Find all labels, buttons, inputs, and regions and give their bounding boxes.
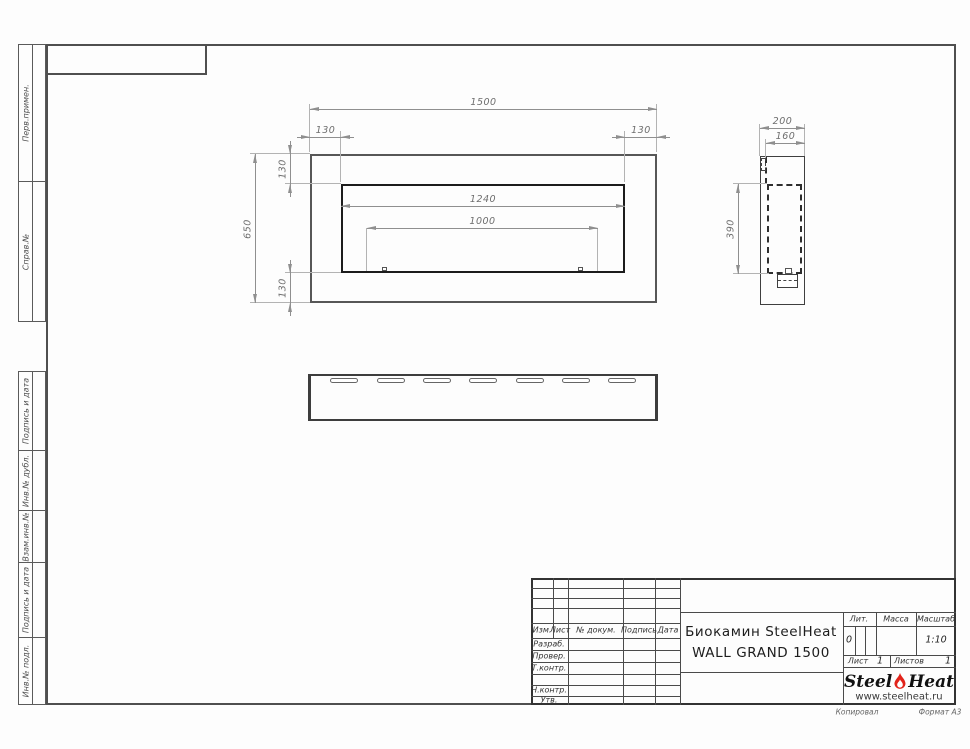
- burner-mark: [382, 267, 387, 271]
- margin-divider: [32, 182, 33, 321]
- arrow-icon: [253, 154, 257, 163]
- logo-heat-text: Heat: [908, 674, 954, 691]
- header-izm: Изм.: [533, 626, 552, 635]
- row-tkontr: Т.контр.: [532, 664, 567, 673]
- extension-line: [250, 153, 310, 154]
- dim-front-opening-width: 1240: [341, 206, 625, 207]
- vent-slot: [377, 378, 405, 383]
- arrow-icon: [589, 226, 598, 230]
- steelheat-logo: Steel Heat: [844, 673, 954, 691]
- dim-value: 1240: [470, 194, 496, 205]
- title-block-line: [865, 626, 866, 655]
- dim-front-width: 1500: [310, 109, 657, 110]
- title-block-line: [680, 612, 956, 613]
- margin-box-podpis-data-1: Подпись и дата: [18, 371, 46, 451]
- vent-slot: [516, 378, 544, 383]
- dim-side-depth: 200: [760, 128, 805, 129]
- arrow-icon: [341, 204, 350, 208]
- lit-value: 0: [846, 635, 852, 646]
- margin-box-podpis-data-2: Подпись и дата: [18, 562, 46, 638]
- dim-front-left-bottom-offset: 130: [290, 273, 291, 303]
- dim-value: 130: [316, 125, 336, 136]
- title-block-line: [531, 598, 680, 599]
- dim-side-inner-height: 390: [738, 184, 739, 274]
- dim-value: 160: [776, 131, 796, 142]
- title-block-line: [890, 655, 891, 667]
- copied-label: Копировал: [836, 708, 879, 717]
- logo-steel-text: Steel: [844, 674, 892, 691]
- margin-box-sprav-no: Справ.№: [18, 181, 46, 322]
- side-view-hidden-box: [767, 184, 802, 274]
- format-label: Формат А3: [919, 708, 962, 717]
- extension-line: [285, 272, 341, 273]
- arrow-icon: [288, 145, 292, 154]
- document-title-line2: WALL GRAND 1500: [692, 645, 830, 661]
- row-nkontr: Н.контр.: [531, 686, 567, 695]
- vent-slot: [423, 378, 451, 383]
- extension-line: [250, 302, 310, 303]
- arrow-icon: [616, 135, 625, 139]
- extension-line: [309, 104, 310, 152]
- title-block-line: [680, 672, 843, 673]
- dim-front-height: 650: [255, 154, 256, 303]
- row-prover: Провер.: [532, 652, 565, 661]
- dim-value: 200: [773, 116, 793, 127]
- row-utv: Утв.: [541, 696, 558, 705]
- arrow-icon: [341, 135, 350, 139]
- arrow-icon: [796, 126, 805, 130]
- document-title-line1: Биокамин SteelHeat: [685, 624, 837, 640]
- margin-divider: [32, 638, 33, 704]
- dim-front-left-top-offset: 130: [290, 154, 291, 184]
- arrow-icon: [616, 204, 625, 208]
- arrow-icon: [301, 135, 310, 139]
- arrow-icon: [766, 141, 775, 145]
- title-block-line: [531, 674, 680, 675]
- dim-front-top-right-offset: 130: [625, 137, 657, 138]
- side-view-bracket-detail: [761, 158, 766, 171]
- header-podpis: Подпись: [621, 626, 657, 635]
- burner-mark: [578, 267, 583, 271]
- dim-front-burner-width: 1000: [367, 228, 598, 229]
- title-block-line: [531, 608, 680, 609]
- scale-value: 1:10: [925, 635, 946, 646]
- extension-line: [366, 228, 367, 271]
- vent-slot: [562, 378, 590, 383]
- arrow-icon: [288, 303, 292, 312]
- side-view-burner-block: [777, 274, 798, 288]
- arrow-icon: [367, 226, 376, 230]
- header-list: Лист: [550, 626, 570, 635]
- arrow-icon: [796, 141, 805, 145]
- arrow-icon: [310, 107, 319, 111]
- margin-label: Справ.№: [22, 233, 31, 269]
- vent-slot: [608, 378, 636, 383]
- lit-label: Лит.: [850, 615, 868, 624]
- dim-value: 130: [631, 125, 651, 136]
- extension-line: [656, 104, 657, 152]
- margin-box-perv-primen: Перв.примен.: [18, 44, 46, 182]
- dim-value: 1000: [469, 216, 495, 227]
- arrow-icon: [760, 126, 769, 130]
- side-view-burner-hidden-line: [778, 280, 797, 281]
- title-block-line: [855, 626, 856, 655]
- drawing-sheet: Перв.примен. Справ.№ Подпись и дата Инв.…: [0, 0, 970, 749]
- margin-label: Взам.инв.№: [22, 512, 31, 561]
- margin-divider: [32, 372, 33, 450]
- sheets-total: 1: [945, 656, 951, 667]
- title-block-line: [843, 667, 956, 668]
- arrow-icon: [736, 184, 740, 193]
- dim-value: 130: [278, 278, 289, 298]
- dim-front-top-left-offset: 130: [310, 137, 341, 138]
- mass-label: Масса: [883, 615, 909, 624]
- arrow-icon: [288, 184, 292, 193]
- title-block-line: [843, 626, 956, 627]
- vent-slot: [330, 378, 358, 383]
- row-razrab: Разраб.: [533, 640, 564, 649]
- flame-icon: [893, 673, 907, 691]
- header-dokum: № докум.: [576, 626, 615, 635]
- dim-value: 390: [726, 219, 737, 239]
- vent-slot: [469, 378, 497, 383]
- arrow-icon: [657, 135, 666, 139]
- title-block-line: [531, 588, 680, 589]
- margin-label: Инв.№ подл.: [22, 645, 31, 698]
- title-block-line: [680, 578, 681, 705]
- scale-label: Масштаб: [917, 615, 955, 624]
- arrow-icon: [288, 264, 292, 273]
- arrow-icon: [253, 294, 257, 303]
- dim-side-inner-depth: 160: [766, 143, 805, 144]
- dim-value: 1500: [470, 97, 496, 108]
- sheet-label: Лист: [848, 657, 868, 666]
- margin-divider: [32, 45, 33, 181]
- margin-label: Перв.примен.: [22, 84, 31, 142]
- margin-label: Подпись и дата: [22, 378, 31, 444]
- title-block-line: [531, 623, 680, 624]
- title-block-line: [876, 612, 877, 655]
- header-data: Дата: [658, 626, 679, 635]
- margin-box-inv-dubl: Инв.№ дубл.: [18, 450, 46, 511]
- dim-value: 130: [278, 159, 289, 179]
- margin-divider: [32, 451, 33, 510]
- extension-line: [597, 228, 598, 271]
- sheet-number: 1: [877, 656, 883, 667]
- logo-url: www.steelheat.ru: [855, 692, 942, 703]
- margin-divider: [32, 511, 33, 562]
- dim-value: 650: [243, 219, 254, 239]
- arrow-icon: [736, 265, 740, 274]
- margin-label: Инв.№ дубл.: [22, 454, 31, 506]
- extension-line: [285, 183, 341, 184]
- margin-box-vzam-inv: Взам.инв.№: [18, 510, 46, 563]
- margin-box-inv-podl: Инв.№ подл.: [18, 637, 46, 705]
- margin-divider: [32, 563, 33, 637]
- arrow-icon: [648, 107, 657, 111]
- margin-label: Подпись и дата: [22, 567, 31, 633]
- designation-box: [46, 44, 207, 75]
- sheets-label: Листов: [894, 657, 924, 666]
